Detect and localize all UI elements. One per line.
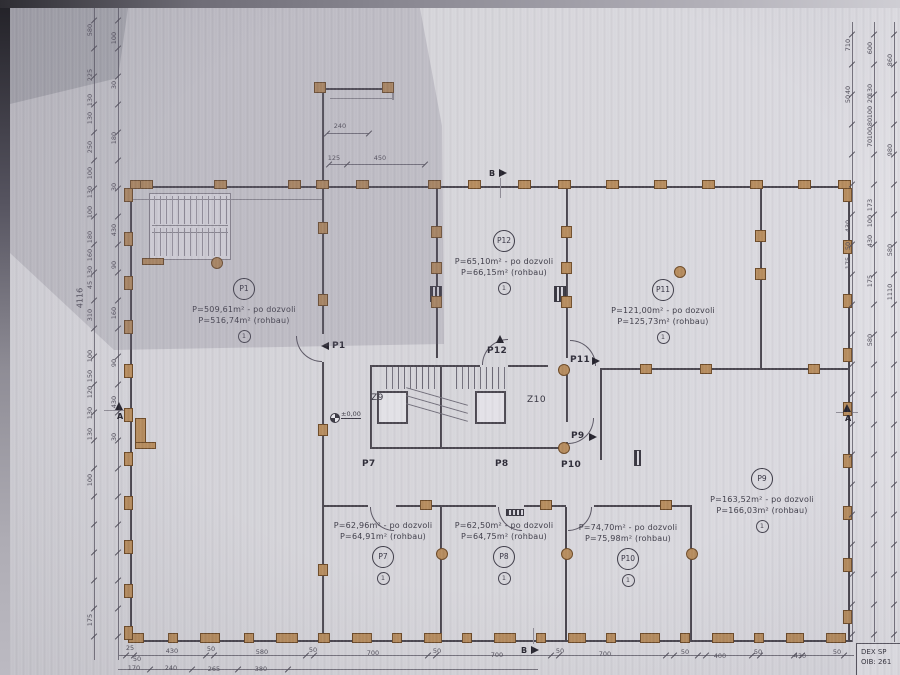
dimension-label: 430 xyxy=(166,647,178,655)
pier xyxy=(200,633,220,643)
dimension-label: 160 xyxy=(86,249,94,261)
dimension-label: 100 xyxy=(86,167,94,179)
section-arrow-icon xyxy=(531,646,539,654)
column xyxy=(558,442,570,454)
elevator-shaft xyxy=(475,391,506,424)
dimension-label: 580 xyxy=(886,244,894,256)
dimension-label: 40 xyxy=(844,86,852,94)
dimension-label: 240 xyxy=(165,664,177,672)
dimension-label: 170 xyxy=(128,664,140,672)
dimension-label: 700 xyxy=(599,650,611,658)
stairwell-label-z9: Z9 xyxy=(371,393,384,403)
pier xyxy=(276,633,298,643)
pier xyxy=(124,320,133,334)
pier xyxy=(462,633,472,643)
dimension-label: 700 xyxy=(491,651,503,659)
pier xyxy=(798,180,811,189)
column xyxy=(211,257,223,269)
stair-tread xyxy=(498,367,499,389)
dimension-label: 50 xyxy=(681,648,689,656)
stair-tread xyxy=(392,367,393,389)
pier xyxy=(124,452,133,466)
wall xyxy=(370,365,372,449)
stair-tread xyxy=(214,228,215,256)
stair-tread xyxy=(208,196,209,224)
room-note-circle: 1 xyxy=(238,330,251,343)
dimension-label: 125 xyxy=(328,154,340,162)
dimension-label: 180 xyxy=(86,231,94,243)
stair-tread xyxy=(226,228,227,256)
pier xyxy=(431,296,442,308)
stair-tread xyxy=(220,228,221,256)
pier xyxy=(700,364,712,374)
pier xyxy=(124,232,133,246)
dimension-label: 173 xyxy=(866,199,874,211)
room-label-p12: P12 P=65,10m² - po dozvoli P=66,15m² (ro… xyxy=(419,230,589,295)
dimension-label: 580 xyxy=(86,24,94,36)
stair-tread xyxy=(410,367,411,389)
pier xyxy=(640,364,652,374)
dimension-label: 580 xyxy=(866,334,874,346)
door-arrow-right-icon xyxy=(589,433,597,441)
dimension-label: 50 xyxy=(207,645,215,653)
stair-tread xyxy=(468,367,469,389)
pier xyxy=(318,222,328,234)
dimension-label: 160 xyxy=(110,307,118,319)
room-number-circle: P9 xyxy=(751,468,773,490)
dimension-label: 50 xyxy=(833,648,841,656)
wall xyxy=(440,367,442,447)
pier xyxy=(712,633,734,643)
dimension-tick xyxy=(366,130,372,136)
door-label-p10: P10 xyxy=(561,460,581,470)
pier xyxy=(140,180,153,189)
dimension-label: 265 xyxy=(208,665,220,673)
room-note-circle: 1 xyxy=(622,574,635,587)
section-marker-b-top: B xyxy=(489,169,495,178)
dimension-label: 1110 xyxy=(886,284,894,301)
pier xyxy=(536,633,546,643)
section-arrow-icon xyxy=(499,169,507,177)
stair-tread xyxy=(226,196,227,224)
dimension-label: 175 xyxy=(866,275,874,287)
dimension-label: 80 xyxy=(866,118,874,126)
level-benchmark-icon xyxy=(330,413,340,423)
dimension-label: 130 xyxy=(86,266,94,278)
stair-tread xyxy=(428,367,429,389)
room-label-p11: P11 P=121,00m² - po dozvoli P=125,73m² (… xyxy=(578,279,748,344)
stair-tread xyxy=(172,228,173,256)
dimension-label: 100 xyxy=(86,206,94,218)
dimension-label: 130 xyxy=(86,112,94,124)
pier xyxy=(124,276,133,290)
pier xyxy=(755,230,766,242)
pier xyxy=(244,633,254,643)
room-area-shell: P=125,73m² (rohbau) xyxy=(578,316,748,327)
pier xyxy=(561,296,572,308)
building-plan: P1 P=509,61m² - po dozvoli P=516,74m² (r… xyxy=(0,0,900,675)
pier xyxy=(124,626,133,640)
stair-tread xyxy=(492,367,493,389)
dimension-label: 180 xyxy=(110,132,118,144)
pier xyxy=(680,633,690,643)
dimension-line xyxy=(329,164,425,165)
door-label-p9: P9 xyxy=(571,431,584,441)
photo-edge-left xyxy=(0,0,10,675)
dimension-label: 580 xyxy=(256,648,268,656)
pier xyxy=(750,180,763,189)
pier xyxy=(124,584,133,598)
stair-tread xyxy=(190,228,191,256)
pier xyxy=(468,180,481,189)
wall-line xyxy=(152,225,228,226)
stair-tread xyxy=(184,196,185,224)
room-number-circle: P10 xyxy=(617,548,639,570)
stair-tread xyxy=(480,367,481,389)
wall xyxy=(128,640,852,642)
room-area-shell: P=75,98m² (rohbau) xyxy=(543,533,713,544)
title-block: DEX SP OIB: 261 xyxy=(856,643,900,675)
dimension-label: 380 xyxy=(255,665,267,673)
pier xyxy=(518,180,531,189)
room-area-shell: P=516,74m² (rohbau) xyxy=(159,315,329,326)
pier xyxy=(494,633,516,643)
dimension-label: 240 xyxy=(334,122,346,130)
section-marker-a-left: A xyxy=(117,412,123,421)
room-area-permit: P=121,00m² - po dozvoli xyxy=(578,305,748,316)
pier xyxy=(826,633,846,643)
stair-tread xyxy=(196,196,197,224)
dimension-label: 25 xyxy=(126,644,134,652)
dimension-label: 50 xyxy=(309,646,317,654)
title-block-company: DEX SP xyxy=(861,647,900,657)
door-label-p8: P8 xyxy=(495,459,508,469)
column xyxy=(558,364,570,376)
stair-tread xyxy=(190,196,191,224)
dimension-label: 430 xyxy=(110,224,118,236)
room-number-circle: P8 xyxy=(493,546,515,568)
room-note-circle: 1 xyxy=(498,572,511,585)
pier xyxy=(640,633,660,643)
dimension-label: 130 xyxy=(86,407,94,419)
dimension-label: 130 xyxy=(86,428,94,440)
dimension-label: 980 xyxy=(886,144,894,156)
door-arrow-left-icon xyxy=(321,342,329,350)
dimension-label: 100 xyxy=(866,127,874,139)
dimension-label: 50 xyxy=(754,648,762,656)
room-number-circle: P11 xyxy=(652,279,674,301)
stair-tread xyxy=(196,228,197,256)
stair-tread xyxy=(462,367,463,389)
pier xyxy=(124,540,133,554)
dimension-label: 860 xyxy=(886,54,894,66)
wall-line xyxy=(330,98,392,99)
stair-tread xyxy=(178,228,179,256)
door-arrow-up-icon xyxy=(496,335,504,343)
pier xyxy=(316,180,329,189)
stair-tread xyxy=(202,196,203,224)
dimension-label: 30 xyxy=(110,183,118,191)
stair-tread xyxy=(154,196,155,224)
dimension-line xyxy=(94,8,95,660)
wall xyxy=(370,447,567,449)
dimension-label: 430 xyxy=(866,235,874,247)
shaft-hatch xyxy=(634,450,641,466)
column xyxy=(674,266,686,278)
pier xyxy=(843,188,852,202)
stair-tread xyxy=(406,403,468,422)
room-area-permit: P=163,52m² - po dozvoli xyxy=(677,494,847,505)
pier xyxy=(428,180,441,189)
pier xyxy=(314,82,326,93)
door-label-p1: P1 xyxy=(332,341,345,351)
dimension-label: 90 xyxy=(110,359,118,367)
room-area-shell: P=166,03m² (rohbau) xyxy=(677,505,847,516)
wall xyxy=(322,505,368,507)
stair-tread xyxy=(486,367,487,389)
stair-tread xyxy=(456,367,457,389)
stair-tread xyxy=(178,196,179,224)
dimension-label: 30 xyxy=(110,433,118,441)
pier xyxy=(755,268,766,280)
dimension-label: 100 xyxy=(86,474,94,486)
dimension-label: 50 xyxy=(844,95,852,103)
dimension-label: 130 xyxy=(86,94,94,106)
door-label-p11: P11 xyxy=(570,355,590,365)
door-label-p12: P12 xyxy=(487,346,507,356)
pier xyxy=(382,82,394,93)
pier xyxy=(660,500,672,510)
pier xyxy=(654,180,667,189)
dimension-line xyxy=(118,669,538,670)
dimension-label: 175 xyxy=(844,257,852,269)
pier xyxy=(356,180,369,189)
stair-tread xyxy=(398,367,399,389)
section-arrow-icon xyxy=(843,404,851,412)
dimension-label: 70 xyxy=(866,139,874,147)
room-label-p1: P1 P=509,61m² - po dozvoli P=516,74m² (r… xyxy=(159,278,329,343)
floor-plan-photo: P1 P=509,61m² - po dozvoli P=516,74m² (r… xyxy=(0,0,900,675)
pier xyxy=(808,364,820,374)
dimension-label: 310 xyxy=(86,309,94,321)
dimension-label: 100 xyxy=(866,106,874,118)
section-marker-b-bottom: B xyxy=(521,646,527,655)
stair-tread xyxy=(208,228,209,256)
room-note-circle: 1 xyxy=(377,572,390,585)
pier xyxy=(168,633,178,643)
dimension-tick xyxy=(422,161,428,167)
stair-tread xyxy=(166,196,167,224)
pier xyxy=(352,633,372,643)
wall xyxy=(396,505,496,507)
dimension-label: 100 xyxy=(110,32,118,44)
pier xyxy=(135,442,156,449)
door-arrow-right-icon xyxy=(592,357,600,365)
level-marker: ±0,00 xyxy=(341,410,361,419)
dimension-label: 45 xyxy=(86,281,94,289)
wall xyxy=(130,186,850,188)
pier xyxy=(420,500,432,510)
room-area-shell: P=66,15m² (rohbau) xyxy=(419,267,589,278)
room-note-circle: 1 xyxy=(657,331,670,344)
stair-tread xyxy=(220,196,221,224)
room-note-circle: 1 xyxy=(756,520,769,533)
room-note-circle: 1 xyxy=(498,282,511,295)
pier xyxy=(318,424,328,436)
pier xyxy=(843,610,852,624)
room-number-circle: P1 xyxy=(233,278,255,300)
wall xyxy=(600,368,602,460)
stair-tread xyxy=(166,228,167,256)
dimension-label: 100 xyxy=(866,215,874,227)
overall-dimension: 4116 xyxy=(76,288,85,308)
pier xyxy=(606,180,619,189)
stair-tread xyxy=(504,367,505,389)
stair-tread xyxy=(416,367,417,389)
pier xyxy=(392,633,402,643)
wall xyxy=(508,365,548,367)
photo-edge-top xyxy=(0,0,900,8)
dimension-label: 175 xyxy=(86,614,94,626)
stairwell-label-z10: Z10 xyxy=(527,395,546,405)
stair-tread xyxy=(202,228,203,256)
pier xyxy=(568,633,586,643)
dimension-label: 30 xyxy=(110,81,118,89)
dimension-label: 50 xyxy=(133,655,141,663)
pier xyxy=(124,188,133,202)
wall-line xyxy=(500,178,501,198)
pier xyxy=(702,180,715,189)
dimension-label: 400 xyxy=(714,652,726,660)
pier xyxy=(424,633,442,643)
stair-tread xyxy=(172,196,173,224)
dimension-label: 50 xyxy=(556,647,564,655)
dimension-label: 430 xyxy=(844,220,852,232)
title-block-oib: OIB: 261 xyxy=(861,657,900,667)
stair-tread xyxy=(474,367,475,389)
stair-tread xyxy=(160,196,161,224)
dimension-label: 20 xyxy=(866,95,874,103)
stair-tread xyxy=(386,367,387,389)
dimension-label: 130 xyxy=(86,186,94,198)
stair-tread xyxy=(214,196,215,224)
room-area-permit: P=74,70m² - po dozvoli xyxy=(543,522,713,533)
pier xyxy=(843,558,852,572)
dimension-label: 710 xyxy=(844,39,852,51)
pier xyxy=(318,633,330,643)
section-marker-a-right: A xyxy=(845,414,851,423)
room-number-circle: P12 xyxy=(493,230,515,252)
room-area-permit: P=65,10m² - po dozvoli xyxy=(419,256,589,267)
dimension-line xyxy=(118,8,119,660)
dimension-label: 120 xyxy=(86,386,94,398)
wall xyxy=(322,362,324,640)
stair-tread xyxy=(404,367,405,389)
wall-line xyxy=(533,628,534,644)
room-label-p10: P=74,70m² - po dozvoli P=75,98m² (rohbau… xyxy=(543,522,713,587)
pier xyxy=(786,633,804,643)
dimension-line xyxy=(118,655,854,656)
pier xyxy=(214,180,227,189)
dimension-label: 600 xyxy=(866,42,874,54)
pier xyxy=(124,408,133,422)
dimension-label: 430 xyxy=(110,396,118,408)
dimension-line xyxy=(327,133,369,134)
pier xyxy=(124,496,133,510)
pier xyxy=(288,180,301,189)
dimension-label: 90 xyxy=(110,261,118,269)
room-number-circle: P7 xyxy=(372,546,394,568)
dimension-label: 250 xyxy=(86,141,94,153)
dimension-label: 100 xyxy=(86,350,94,362)
dimension-label: 50 xyxy=(433,647,441,655)
pier xyxy=(843,348,852,362)
stair-tread xyxy=(184,228,185,256)
stair-tread xyxy=(160,228,161,256)
pier xyxy=(124,364,133,378)
dimension-label: 225 xyxy=(86,69,94,81)
dimension-label: 50 xyxy=(844,242,852,250)
pier xyxy=(606,633,616,643)
stair-tread xyxy=(154,228,155,256)
room-area-permit: P=509,61m² - po dozvoli xyxy=(159,304,329,315)
stair-tread xyxy=(434,367,435,389)
door-label-p7: P7 xyxy=(362,459,375,469)
pier xyxy=(142,258,164,265)
pier xyxy=(540,500,552,510)
dimension-label: 700 xyxy=(367,649,379,657)
dimension-label: 150 xyxy=(86,370,94,382)
stair-tread xyxy=(422,367,423,389)
dimension-label: 430 xyxy=(794,652,806,660)
pier xyxy=(754,633,764,643)
pier xyxy=(558,180,571,189)
dimension-label: 450 xyxy=(374,154,386,162)
